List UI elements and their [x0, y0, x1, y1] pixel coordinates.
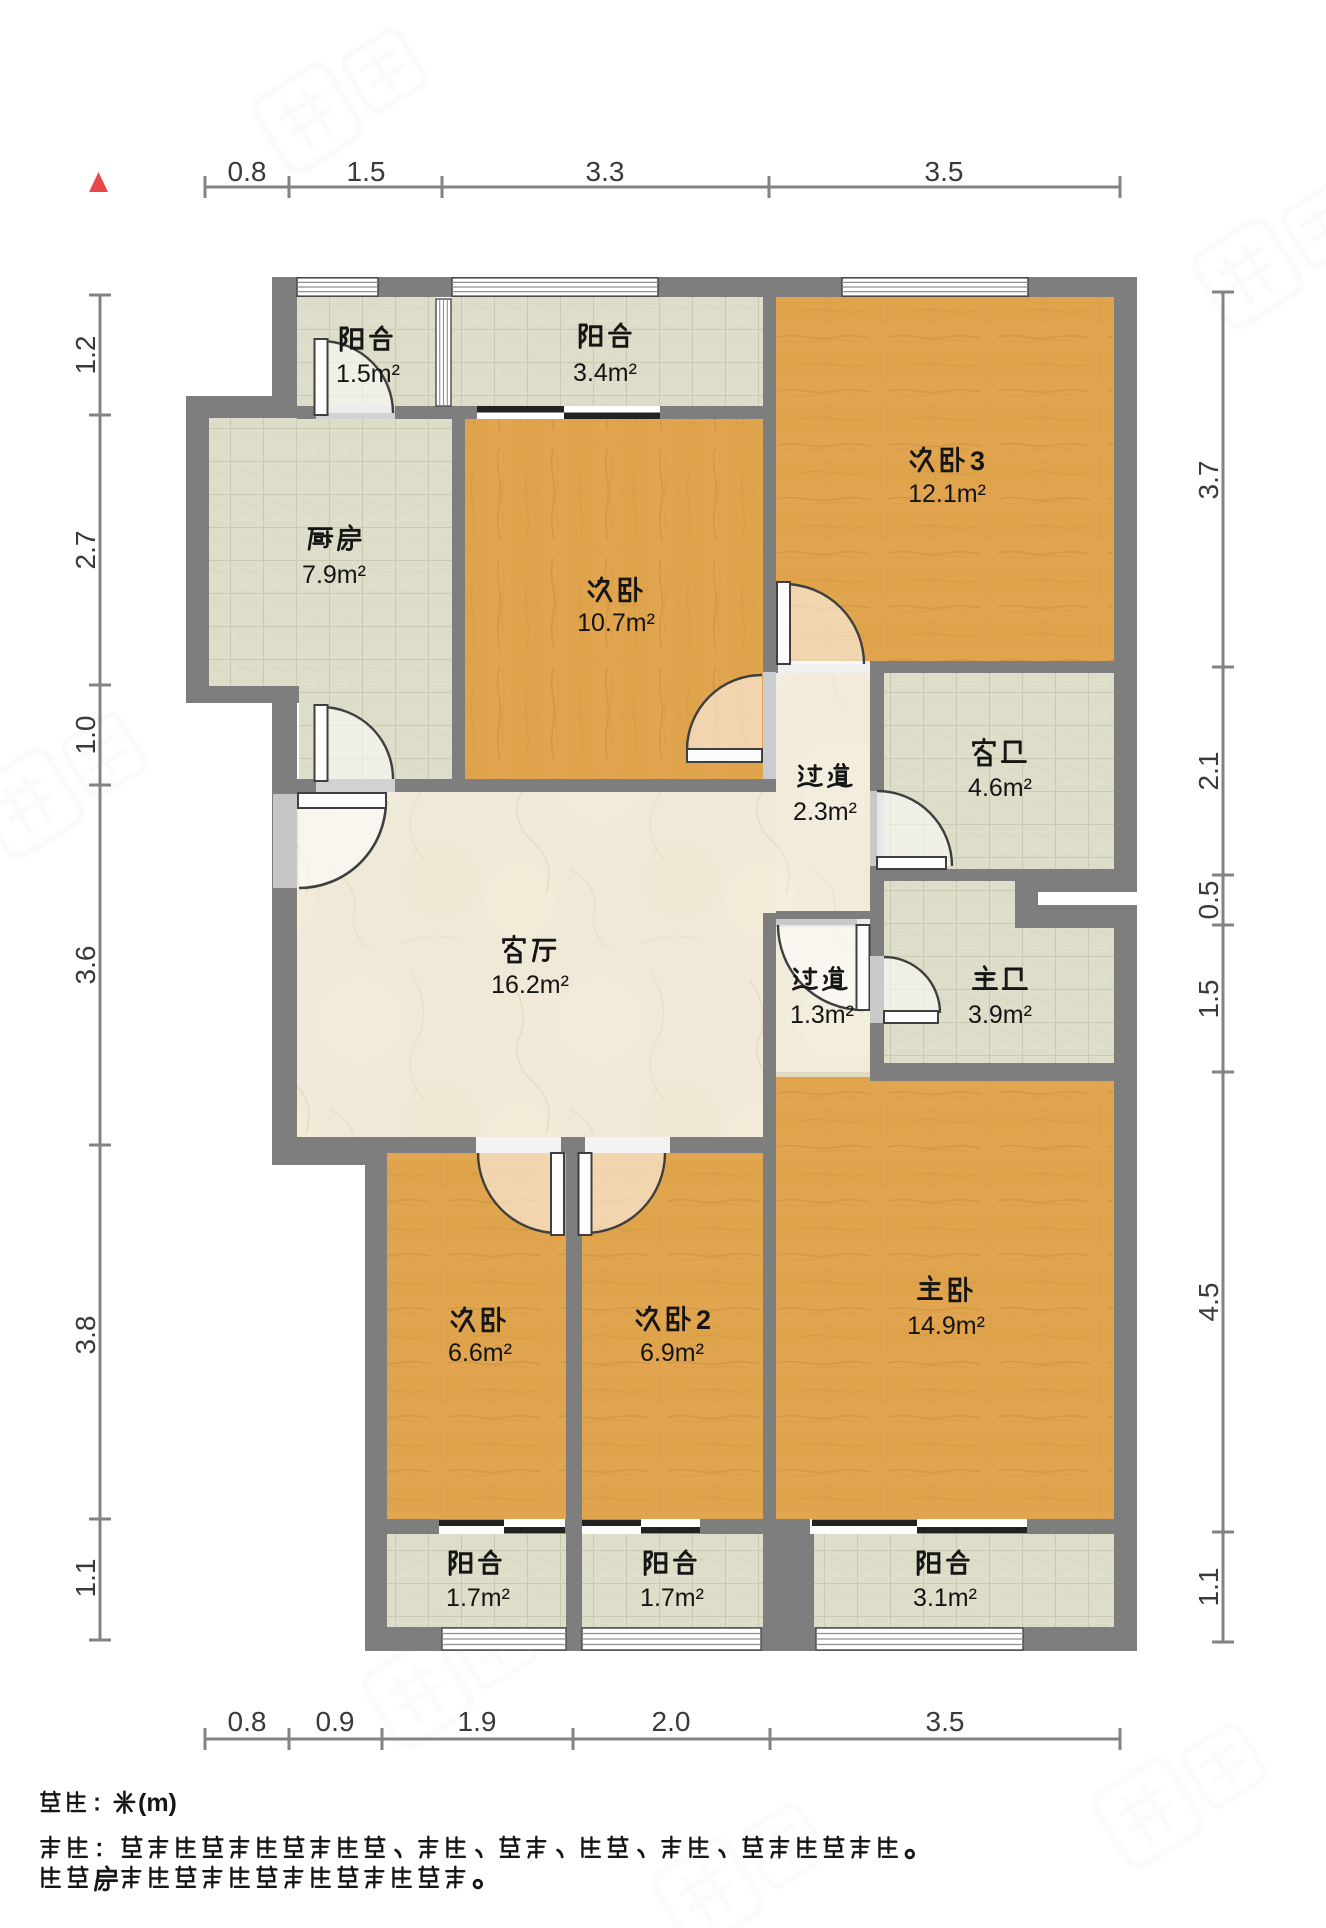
svg-text:0.8: 0.8: [228, 1706, 267, 1737]
svg-text:3.6: 3.6: [70, 946, 101, 985]
svg-text:6.6m²: 6.6m²: [448, 1339, 512, 1367]
svg-text:3.3: 3.3: [586, 156, 625, 187]
svg-text:1.1: 1.1: [1193, 1568, 1224, 1607]
svg-text:3.8: 3.8: [70, 1316, 101, 1355]
svg-text:1.7m²: 1.7m²: [640, 1584, 704, 1612]
svg-text:(m): (m): [138, 1789, 177, 1817]
svg-text:1.5m²: 1.5m²: [336, 360, 400, 388]
svg-text:4.5: 4.5: [1193, 1283, 1224, 1322]
svg-text:2: 2: [696, 1305, 711, 1335]
svg-text:1.5: 1.5: [1193, 980, 1224, 1019]
svg-text:1.7m²: 1.7m²: [446, 1584, 510, 1612]
svg-text:6.9m²: 6.9m²: [640, 1339, 704, 1367]
svg-text:12.1m²: 12.1m²: [908, 480, 986, 508]
svg-text:0.8: 0.8: [228, 156, 267, 187]
svg-text:1.3m²: 1.3m²: [790, 1001, 854, 1029]
svg-text:7.9m²: 7.9m²: [302, 561, 366, 589]
svg-text:10.7m²: 10.7m²: [577, 609, 655, 637]
svg-text:1.5: 1.5: [347, 156, 386, 187]
svg-text:3.5: 3.5: [925, 156, 964, 187]
svg-text:4.6m²: 4.6m²: [968, 774, 1032, 802]
svg-text:14.9m²: 14.9m²: [907, 1312, 985, 1340]
svg-text:3.5: 3.5: [926, 1706, 965, 1737]
svg-text:2.0: 2.0: [652, 1706, 691, 1737]
svg-text:1.9: 1.9: [458, 1706, 497, 1737]
svg-text:2.1: 2.1: [1193, 752, 1224, 791]
svg-text:1.0: 1.0: [70, 716, 101, 755]
svg-text:3.9m²: 3.9m²: [968, 1001, 1032, 1029]
svg-text:3.7: 3.7: [1193, 461, 1224, 500]
svg-text:1.1: 1.1: [70, 1559, 101, 1598]
svg-text:0.9: 0.9: [316, 1706, 355, 1737]
svg-text:1.2: 1.2: [70, 336, 101, 375]
svg-text:3.1m²: 3.1m²: [913, 1584, 977, 1612]
svg-text:2.7: 2.7: [70, 531, 101, 570]
svg-text:16.2m²: 16.2m²: [491, 971, 569, 999]
svg-text:2.3m²: 2.3m²: [793, 798, 857, 826]
svg-text:0.5: 0.5: [1193, 881, 1224, 920]
svg-text:3: 3: [970, 446, 985, 476]
svg-text:3.4m²: 3.4m²: [573, 359, 637, 387]
